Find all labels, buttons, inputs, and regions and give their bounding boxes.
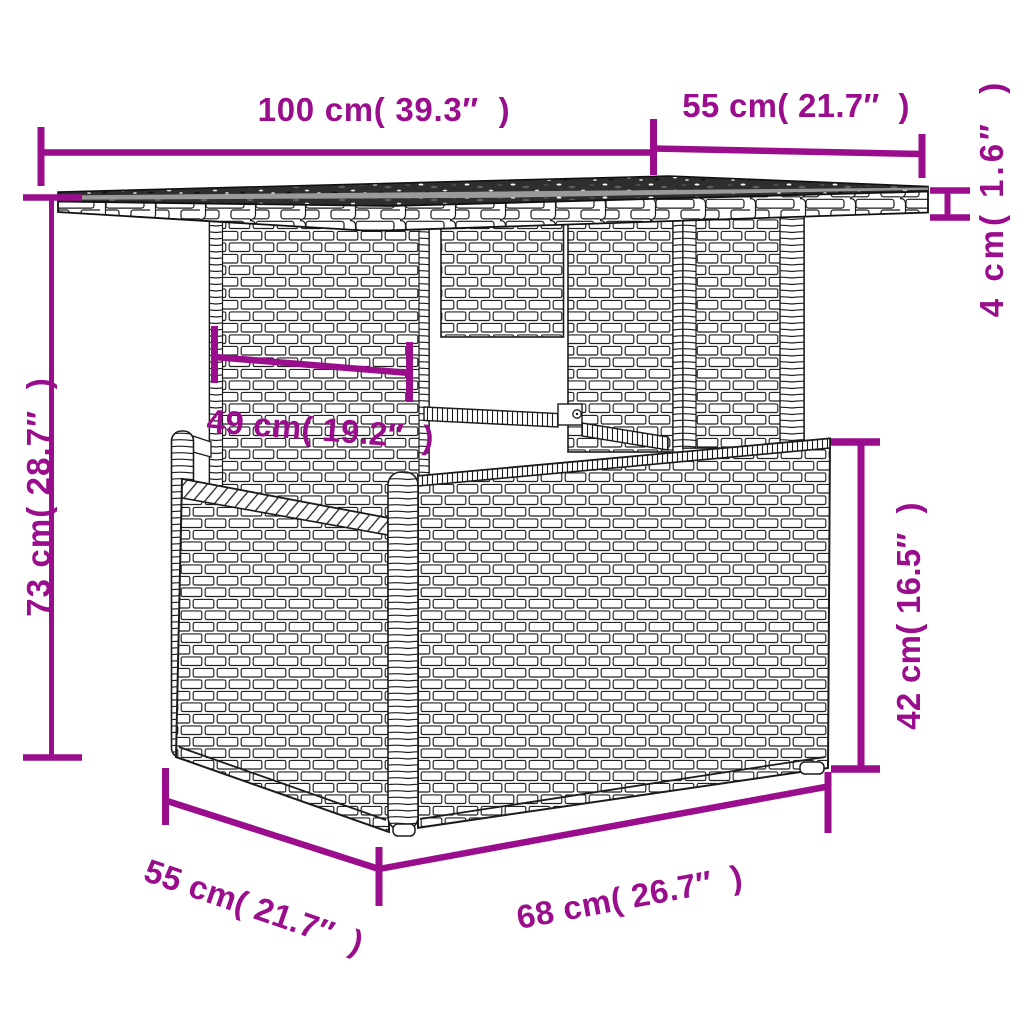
svg-text:73 cm( 28.7″ ): 73 cm( 28.7″ ) [20,377,57,617]
svg-text:4 cm( 1.6″ ): 4 cm( 1.6″ ) [973,79,1010,317]
svg-text:100 cm( 39.3″ ): 100 cm( 39.3″ ) [258,91,511,128]
svg-text:55 cm( 21.7″ ): 55 cm( 21.7″ ) [682,87,910,124]
svg-text:42 cm( 16.5″ ): 42 cm( 16.5″ ) [890,502,927,730]
